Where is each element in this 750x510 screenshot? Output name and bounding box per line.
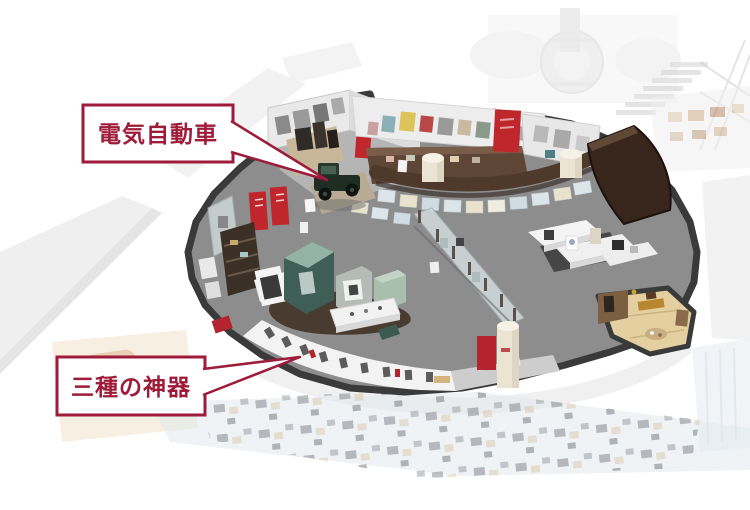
museum-floor-map: 電気自動車 三種の神器 [0, 0, 750, 510]
exhibition-floor [188, 90, 697, 392]
red-wall-segment [477, 336, 496, 370]
red-banner-right [493, 109, 521, 152]
wall-slab-right-faded [702, 175, 750, 340]
floor-map-page: 電気自動車 三種の神器 [0, 0, 750, 510]
display-wall-right-faded [650, 86, 750, 172]
callout-label-electric-car: 電気自動車 [98, 121, 218, 147]
seminar-tables-faded [200, 390, 700, 478]
callout-label-sacred-treasures: 三種の神器 [71, 374, 191, 400]
wall-slab-faded [282, 42, 362, 84]
